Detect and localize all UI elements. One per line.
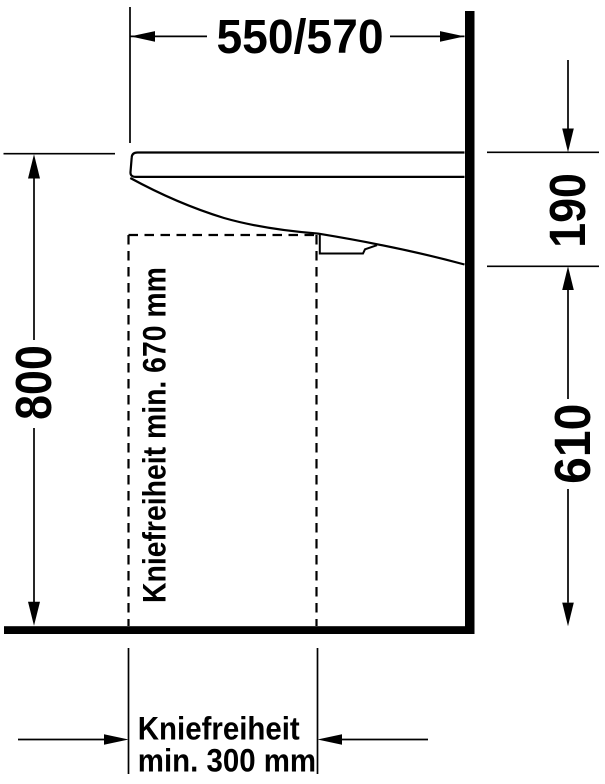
svg-text:190: 190: [540, 173, 596, 248]
svg-text:min. 300 mm: min. 300 mm: [138, 742, 316, 778]
svg-text:800: 800: [6, 345, 62, 420]
svg-text:550/570: 550/570: [216, 9, 383, 63]
svg-text:610: 610: [543, 404, 601, 484]
svg-text:Kniefreiheit min. 670 mm: Kniefreiheit min. 670 mm: [138, 267, 173, 603]
svg-text:Kniefreiheit: Kniefreiheit: [138, 710, 300, 746]
